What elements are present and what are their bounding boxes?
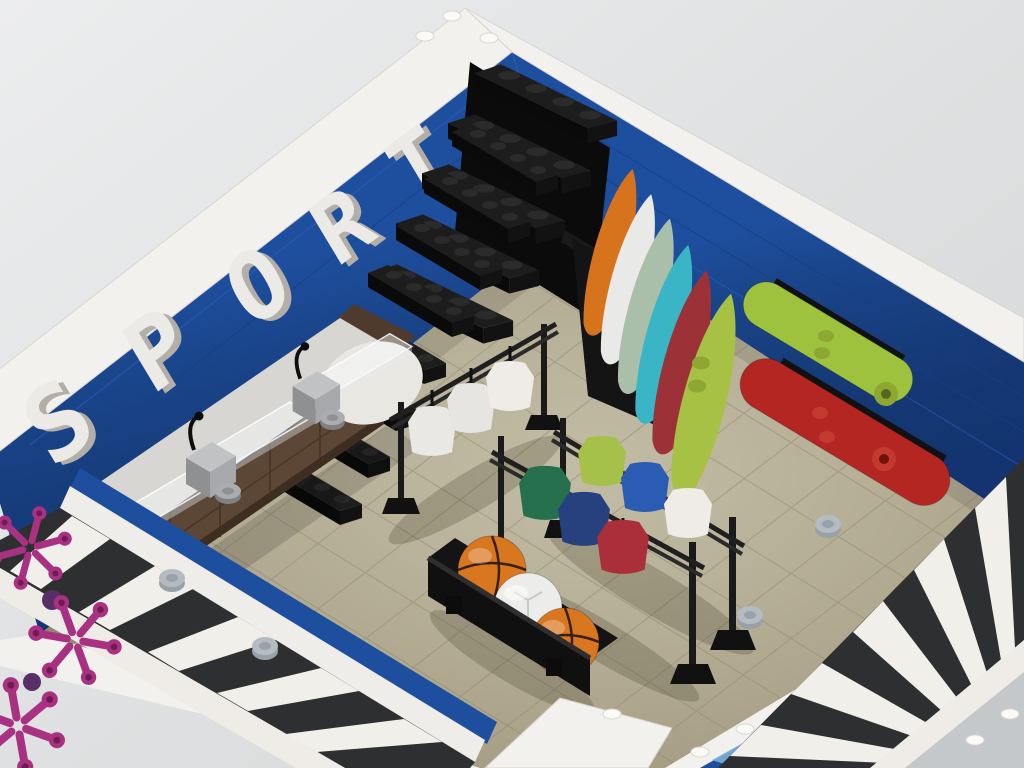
trim-stud bbox=[480, 33, 498, 43]
exterior-stud bbox=[159, 569, 185, 592]
skateboard-hole-center bbox=[879, 454, 889, 464]
jersey bbox=[486, 361, 534, 411]
skateboard-stud bbox=[812, 407, 828, 419]
jersey bbox=[578, 436, 626, 486]
skateboard-stud bbox=[819, 431, 835, 443]
trim-stud bbox=[443, 11, 461, 21]
exterior-stud bbox=[252, 637, 278, 660]
trim-stud bbox=[416, 31, 434, 41]
skateboard-hole-center bbox=[881, 389, 891, 399]
jersey bbox=[597, 520, 649, 574]
jersey bbox=[621, 462, 669, 512]
jersey bbox=[447, 383, 495, 433]
skateboard-stud bbox=[818, 330, 834, 342]
surfboard-stud bbox=[688, 380, 706, 393]
jersey bbox=[664, 488, 712, 538]
skateboard-stud bbox=[814, 347, 830, 359]
surfboard-stud bbox=[692, 357, 710, 370]
scene-svg: S S P P O O R R T T bbox=[0, 0, 1024, 768]
jersey bbox=[408, 406, 456, 456]
exterior-stud bbox=[737, 606, 763, 629]
lego-room-render: S S P P O O R R T T bbox=[0, 0, 1024, 768]
exterior-stud bbox=[815, 515, 841, 538]
